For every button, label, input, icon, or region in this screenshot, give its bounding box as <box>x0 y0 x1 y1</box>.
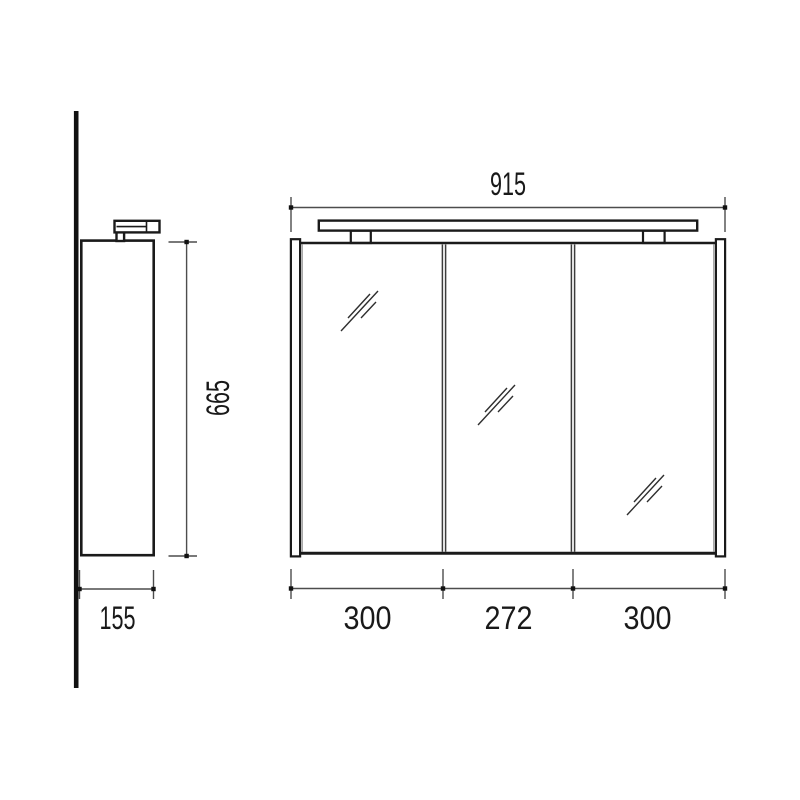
dim-height-label: 665 <box>200 380 236 416</box>
dim-doors-dot-4 <box>723 586 727 590</box>
dim-height: 665 <box>169 240 237 558</box>
lamp-bracket-left <box>351 231 371 243</box>
dim-door-middle-label: 272 <box>485 600 533 636</box>
dim-depth-dot-left <box>77 587 81 591</box>
mirror-cabinet-drawing: 665 155 915 <box>0 0 800 800</box>
dim-doors-dot-2 <box>441 586 445 590</box>
dim-height-dot-top <box>184 240 188 244</box>
dim-depth: 155 <box>77 570 155 636</box>
lamp-bracket-right <box>643 231 665 243</box>
side-cabinet-body <box>81 241 153 556</box>
mirror-icon-right-door <box>627 475 664 515</box>
dim-door-left-label: 300 <box>344 600 392 636</box>
front-view: 915 <box>289 166 727 636</box>
dim-width-dot-left <box>289 205 293 209</box>
dim-width-dot-right <box>723 205 727 209</box>
mirror-icon-left-door <box>341 291 378 331</box>
light-bar <box>319 221 697 231</box>
door-joint-right <box>571 245 574 552</box>
dim-height-dot-bottom <box>184 554 188 558</box>
technical-drawing-canvas: 665 155 915 <box>0 0 800 800</box>
dim-doors-dot-1 <box>289 586 293 590</box>
side-view: 665 155 <box>76 111 236 688</box>
side-panel-left <box>291 239 300 556</box>
dim-overall-width-label: 915 <box>490 166 526 202</box>
side-lamp <box>115 221 160 241</box>
dim-doors-dot-3 <box>571 586 575 590</box>
dim-depth-label: 155 <box>100 600 136 636</box>
dim-depth-dot-right <box>151 587 155 591</box>
dim-door-widths: 300 272 300 <box>289 569 727 636</box>
side-panel-right <box>716 239 725 556</box>
dim-door-right-label: 300 <box>624 600 672 636</box>
mirror-icon-middle-door <box>478 385 515 425</box>
door-joint-left <box>442 245 445 552</box>
